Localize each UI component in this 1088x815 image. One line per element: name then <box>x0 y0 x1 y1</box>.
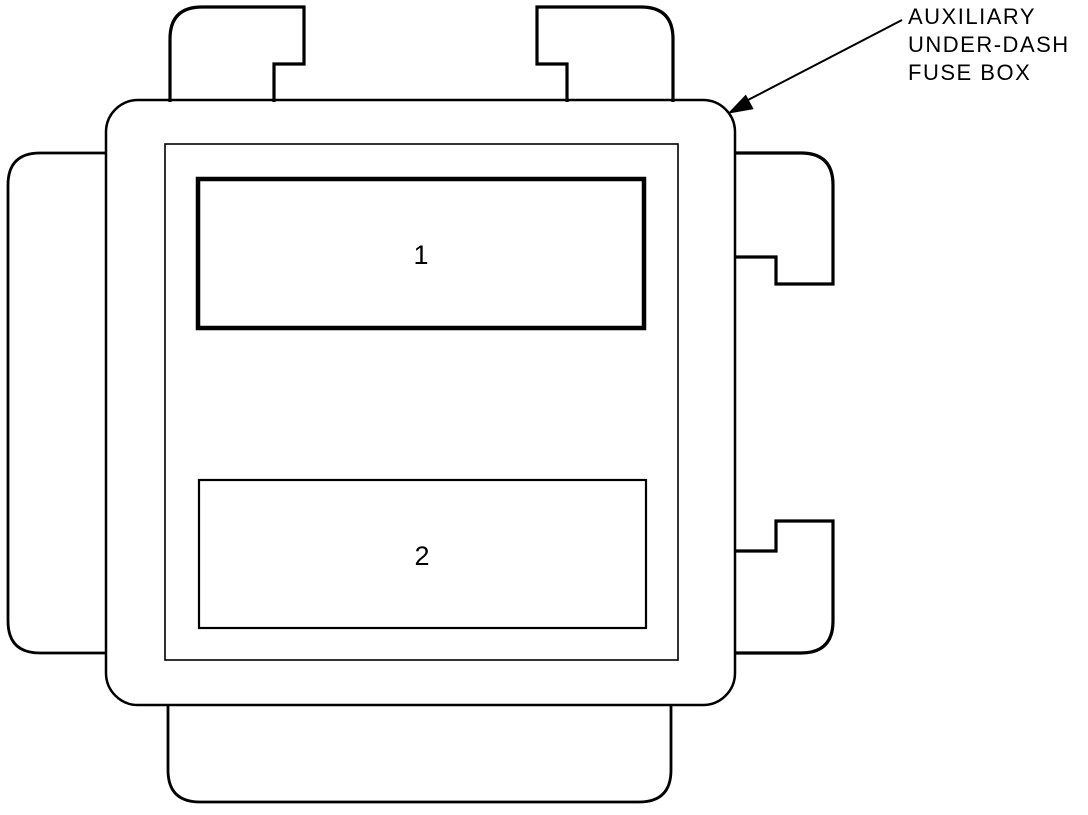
callout-arrowhead-icon <box>729 96 753 114</box>
mounting-tab-right-lower <box>734 521 833 653</box>
callout-label-line-3: FUSE BOX <box>908 60 1031 85</box>
callout-label-line-2: UNDER-DASH <box>908 32 1070 57</box>
fuse-box-diagram: AUXILIARY UNDER-DASH FUSE BOX 1 2 <box>0 0 1088 810</box>
callout-label-line-1: AUXILIARY <box>908 4 1036 29</box>
fuse-box-diagram-canvas: AUXILIARY UNDER-DASH FUSE BOX 1 2 <box>0 0 1088 810</box>
mounting-tab-bottom <box>168 704 671 802</box>
callout-leader-line <box>748 20 902 100</box>
connector-slot-1-label: 1 <box>413 240 428 270</box>
fuse-box-body-outline <box>106 100 735 705</box>
mounting-tab-top-right <box>537 7 673 102</box>
mounting-tab-left <box>8 153 107 653</box>
connector-slot-2-label: 2 <box>414 541 429 571</box>
fuse-box-inner-panel <box>165 144 678 660</box>
mounting-tab-top-left <box>170 7 304 102</box>
mounting-tab-right-upper <box>734 153 833 284</box>
